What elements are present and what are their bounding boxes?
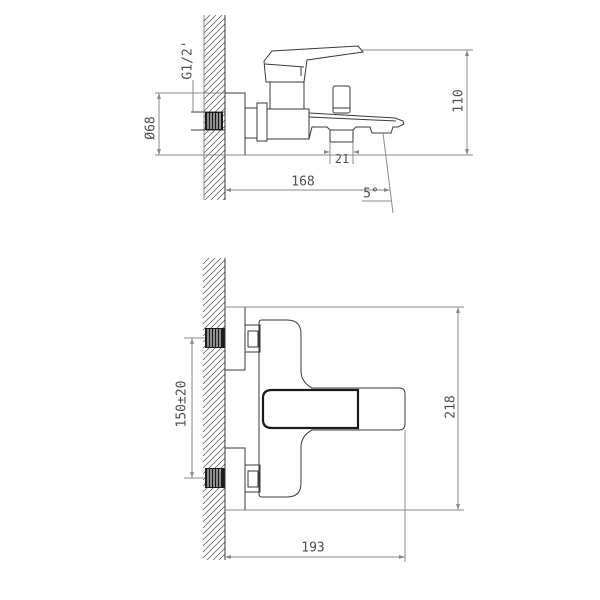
faucet-technical-drawing	[0, 0, 600, 600]
faucet-body-front	[259, 320, 405, 497]
dim-label-outlet-width-21: 21	[335, 153, 349, 165]
faucet-body-side	[267, 109, 309, 139]
front-view	[203, 258, 405, 560]
blueprint-canvas: G1/2' Ø68 110 168 21 5° 150±20 218 193	[0, 0, 600, 600]
dim-label-height-110: 110	[453, 89, 466, 112]
dim-label-flange-diameter: Ø68	[145, 116, 158, 139]
escutcheon-side	[225, 93, 245, 155]
front-view-dimensions	[184, 307, 464, 562]
wall-hatch-front	[203, 258, 225, 560]
dim-label-spout-angle-5deg: 5°	[363, 188, 379, 201]
escutcheon-top-front	[225, 307, 245, 370]
dim-label-overall-height-218: 218	[445, 395, 458, 418]
escutcheon-bottom-front	[225, 448, 245, 510]
wall-hatch-side	[204, 15, 225, 200]
side-view	[191, 15, 404, 200]
dim-label-reach-168: 168	[291, 176, 314, 189]
dim-label-reach-193: 193	[301, 542, 324, 555]
handle-front	[263, 390, 358, 428]
dim-label-thread-size: G1/2'	[182, 40, 195, 79]
diverter-knob	[333, 86, 350, 113]
handle-side	[264, 46, 363, 82]
dim-label-inlet-spacing-150: 150±20	[176, 381, 189, 428]
arrowheads-front	[190, 307, 460, 559]
